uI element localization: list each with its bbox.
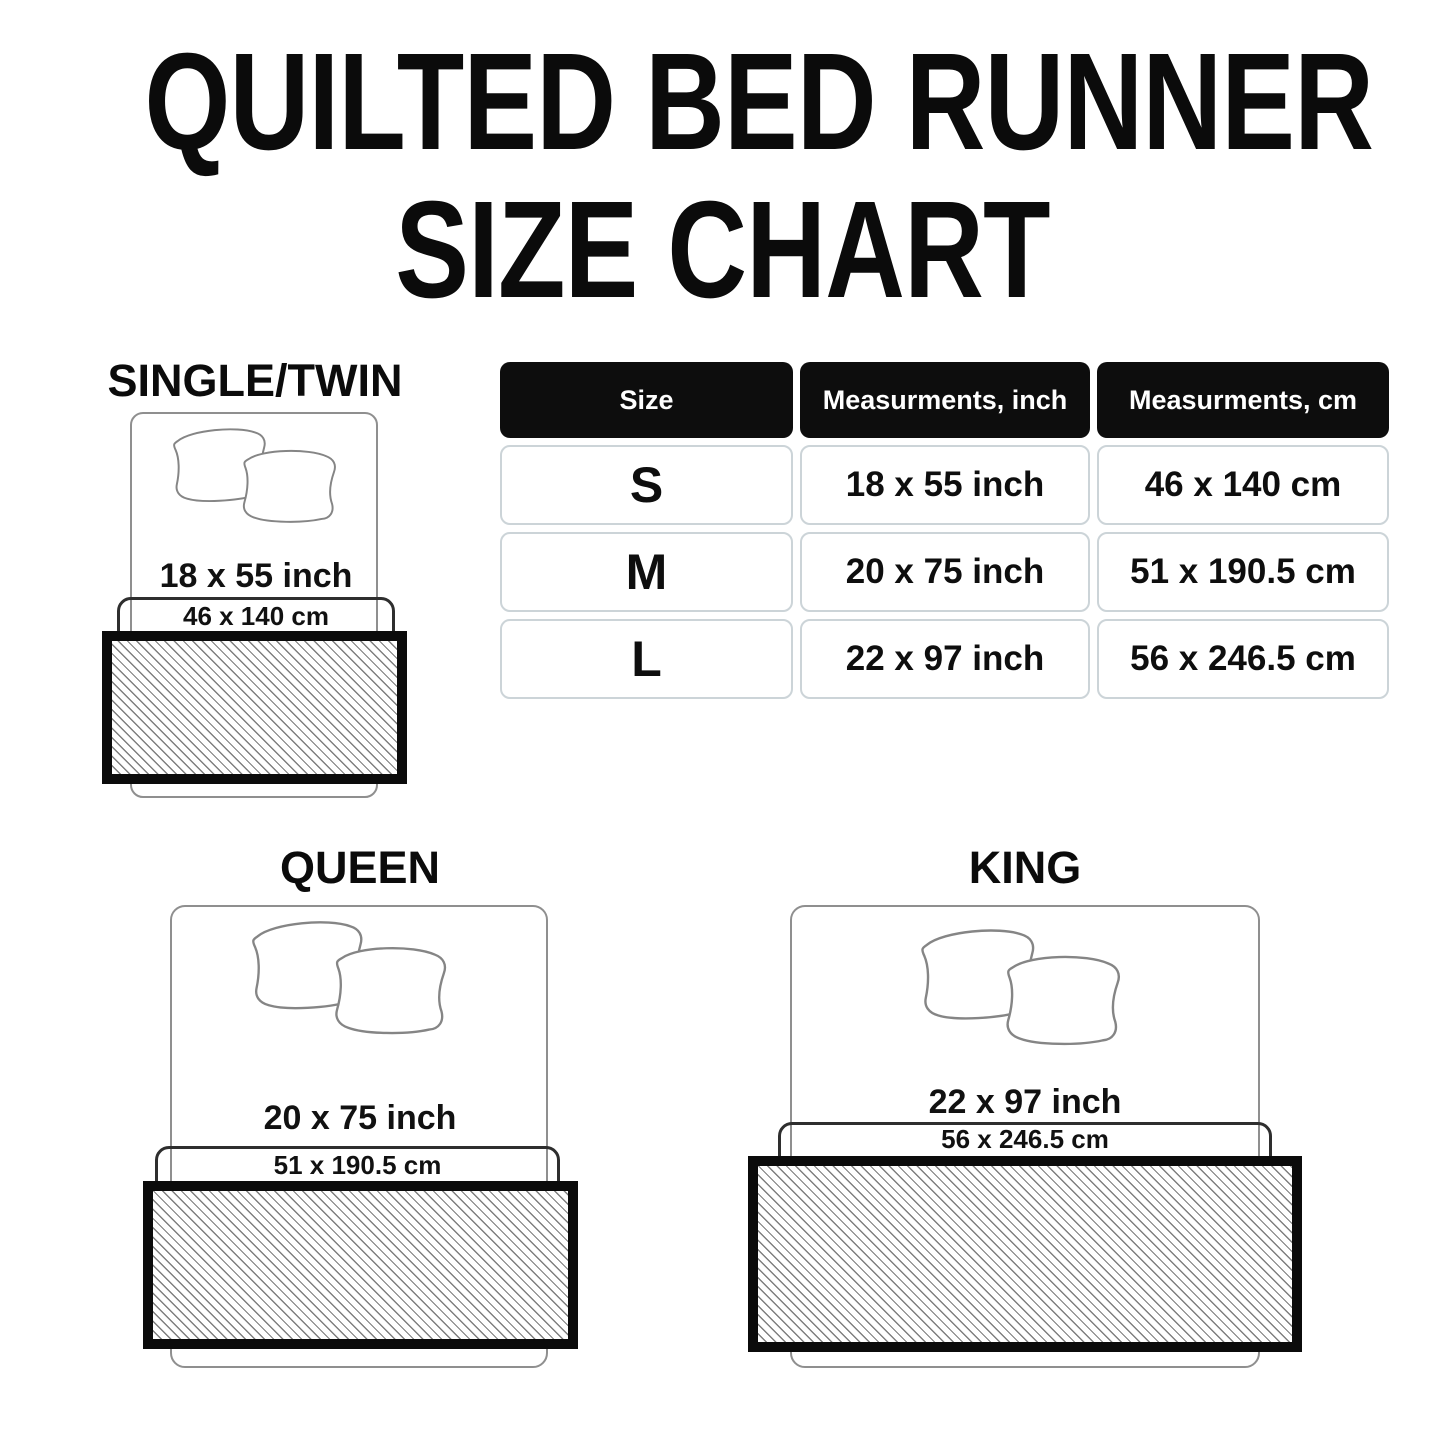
table-cell-size-m: M [500,532,793,612]
table-header-inch: Measurments, inch [800,362,1090,438]
table-cell-cm-m: 51 x 190.5 cm [1097,532,1389,612]
pillows-icon-queen [246,916,451,1038]
dimension-inch-single-twin: 18 x 55 inch [106,556,406,596]
diagram-label-single-twin: SINGLE/TWIN [80,356,430,406]
dimension-inch-king: 22 x 97 inch [850,1082,1200,1122]
runner-swatch-king [748,1156,1302,1352]
table-cell-cm-s: 46 x 140 cm [1097,445,1389,525]
table-cell-size-l: L [500,619,793,699]
diagram-label-queen: QUEEN [185,843,535,893]
diagram-label-king: KING [850,843,1200,893]
page-title: QUILTED BED RUNNER SIZE CHART [0,28,1445,324]
dimension-cm-king: 56 x 246.5 cm [778,1124,1272,1154]
dimension-cm-queen: 51 x 190.5 cm [155,1150,560,1180]
page-title-line2: SIZE CHART [145,176,1301,324]
table-cell-cm-l: 56 x 246.5 cm [1097,619,1389,699]
page-title-line1: QUILTED BED RUNNER [145,28,1301,176]
runner-swatch-single-twin [102,631,407,784]
dimension-inch-queen: 20 x 75 inch [185,1098,535,1138]
pillows-icon-king [915,924,1125,1049]
runner-swatch-queen [143,1181,578,1349]
size-table: Size Measurments, inch Measurments, cm S… [500,362,1392,699]
dimension-cm-single-twin: 46 x 140 cm [117,601,395,631]
table-header-cm: Measurments, cm [1097,362,1389,438]
table-header-size: Size [500,362,793,438]
table-cell-inch-s: 18 x 55 inch [800,445,1090,525]
size-chart-page: QUILTED BED RUNNER SIZE CHART Size Measu… [0,0,1445,1445]
table-cell-inch-m: 20 x 75 inch [800,532,1090,612]
table-cell-size-s: S [500,445,793,525]
table-cell-inch-l: 22 x 97 inch [800,619,1090,699]
pillows-icon-single-twin [168,424,340,526]
